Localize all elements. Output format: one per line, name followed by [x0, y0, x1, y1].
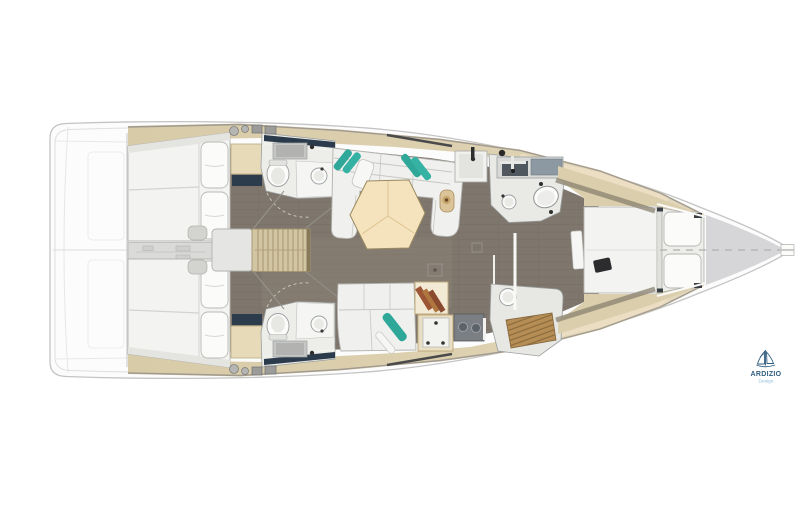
svg-text:ARDIZIO: ARDIZIO — [751, 371, 782, 378]
svg-text:Design: Design — [759, 379, 774, 385]
